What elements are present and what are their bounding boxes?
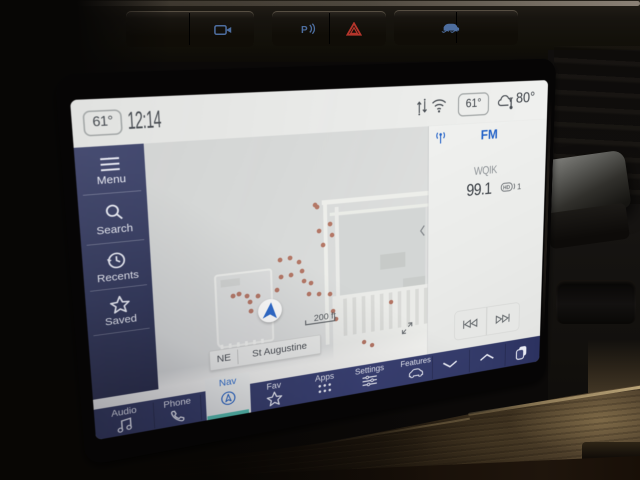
- svg-text:HD: HD: [503, 184, 510, 191]
- svg-text:P: P: [301, 25, 308, 35]
- svg-text:1: 1: [517, 182, 521, 191]
